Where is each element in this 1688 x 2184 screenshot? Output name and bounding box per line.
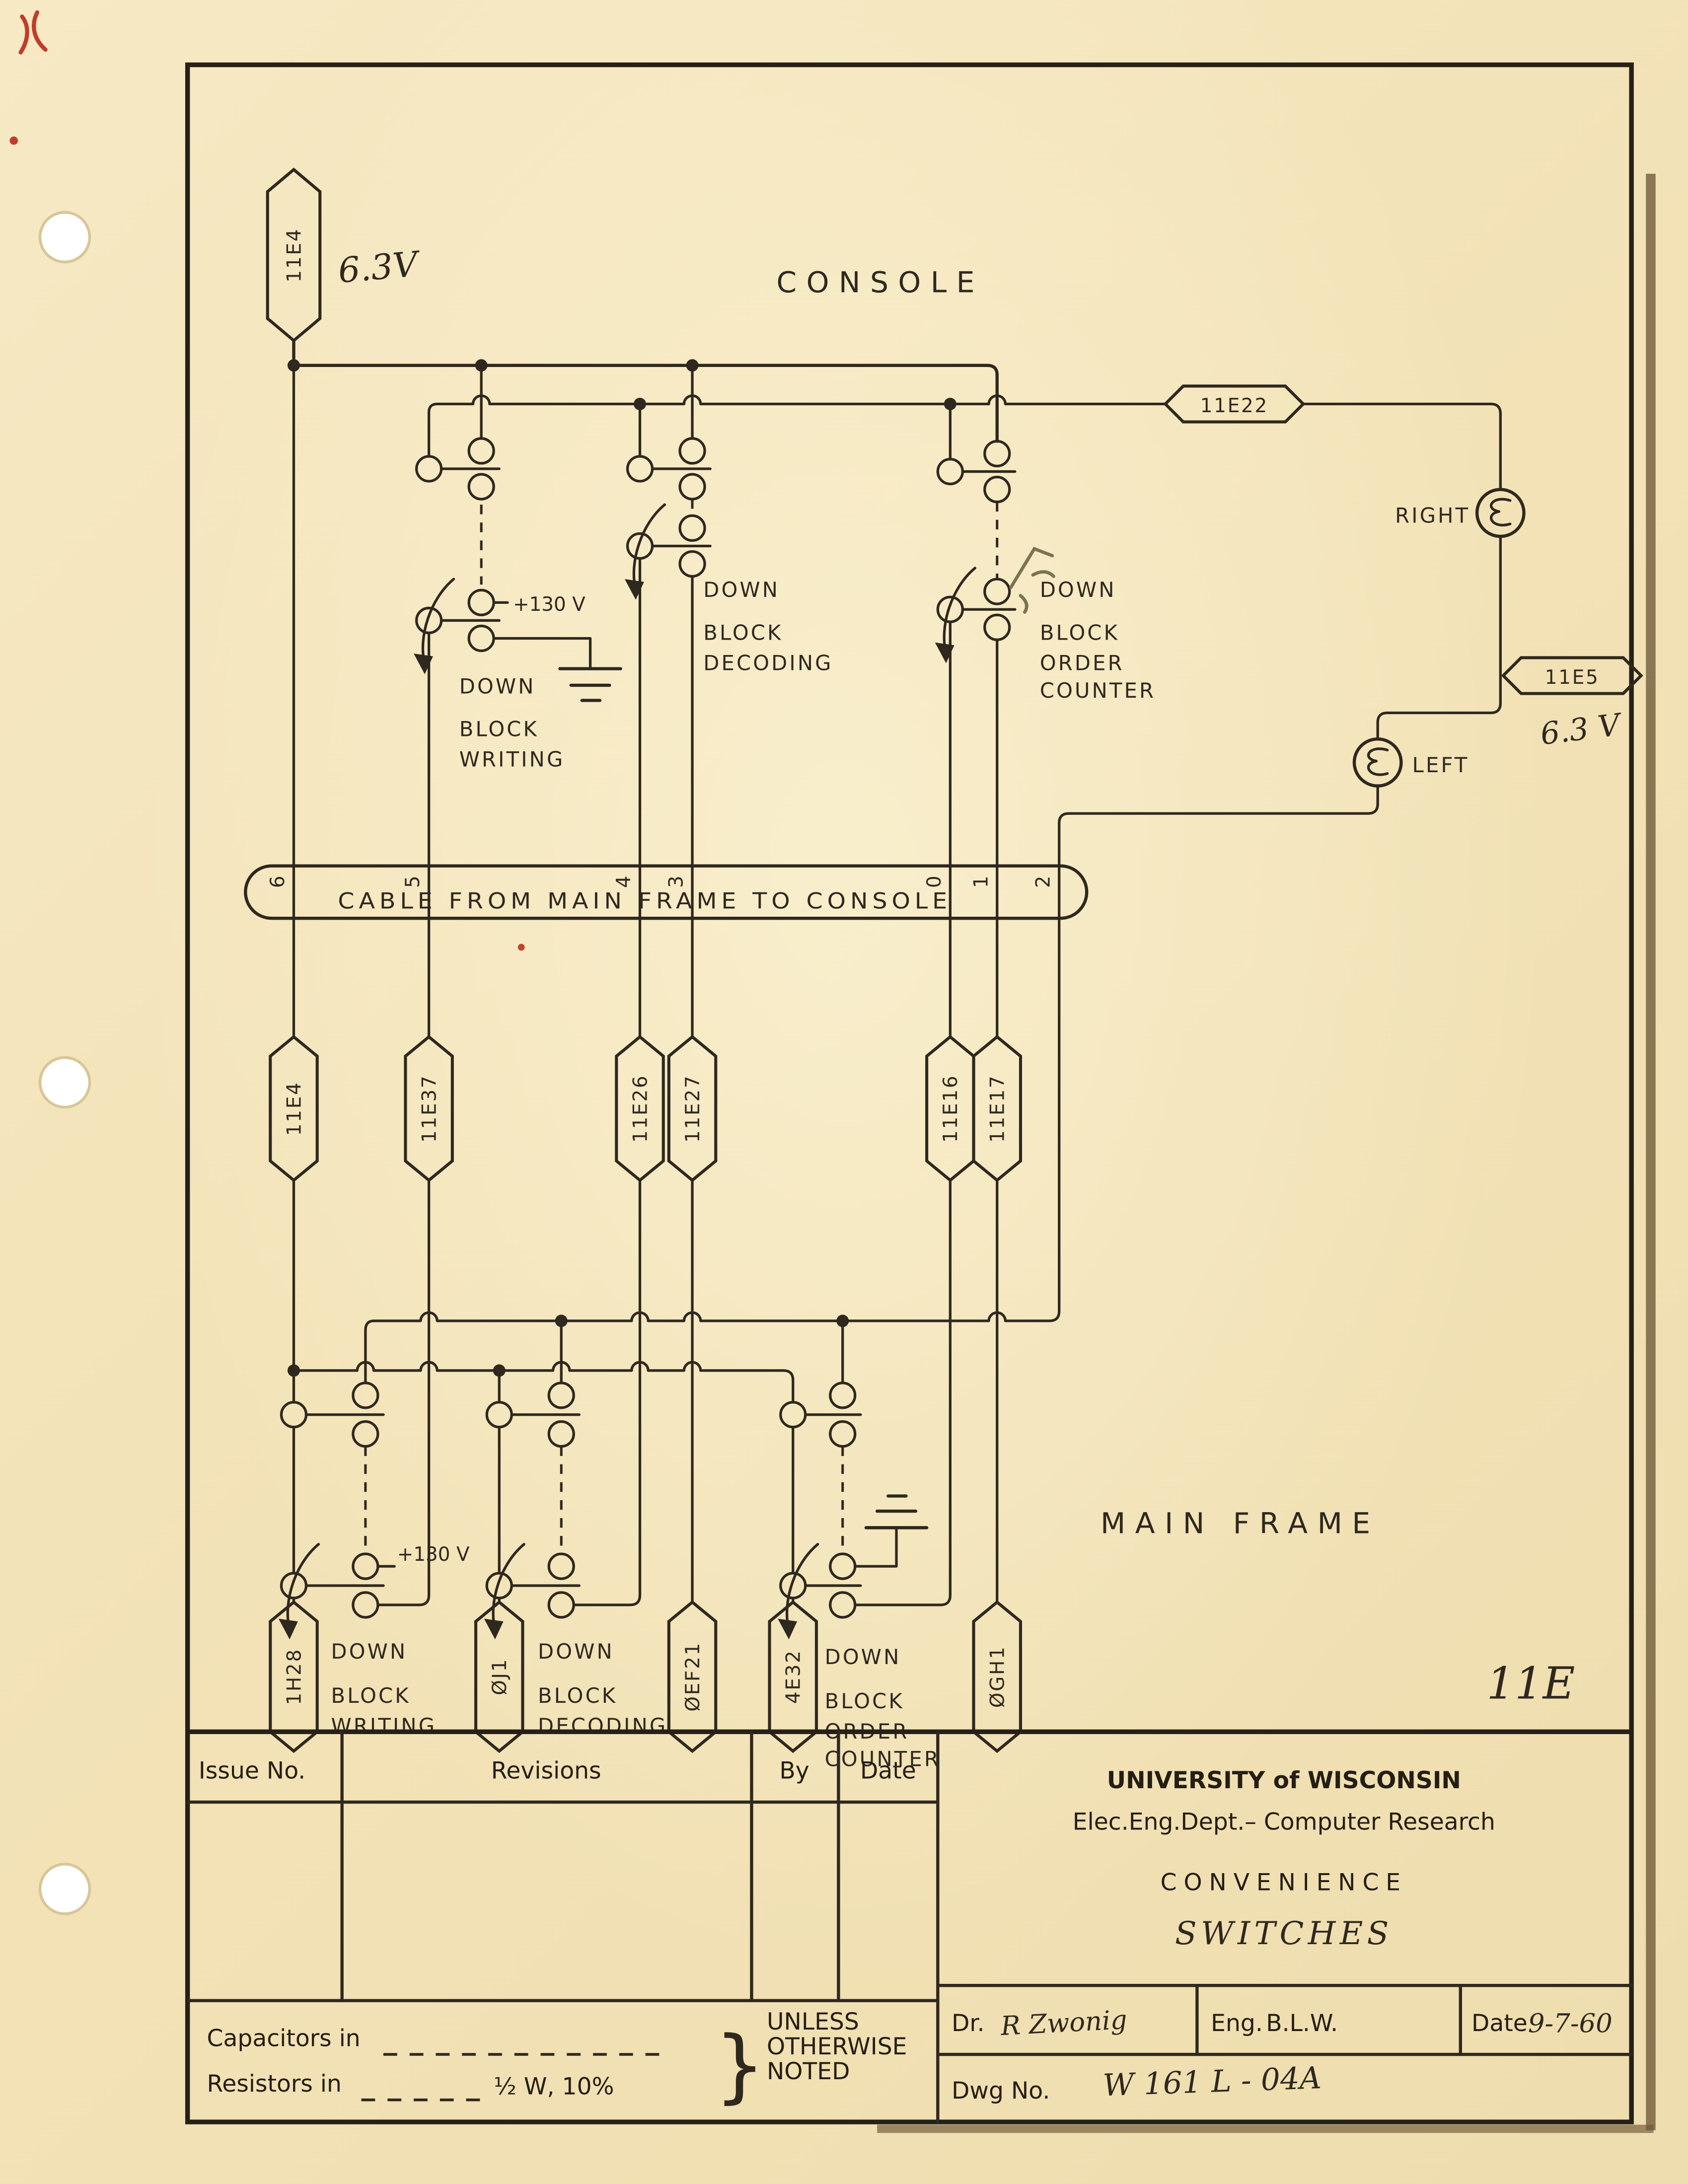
- voltage-6-3v: 6.3V: [337, 244, 423, 291]
- tag-text: 11E16: [940, 1075, 962, 1143]
- switch-position-label: DOWN: [538, 1639, 614, 1664]
- date-label: Date: [1471, 2010, 1528, 2037]
- tag-text: 11E22: [1200, 395, 1268, 417]
- mainframe-switch-block-writing: +130 V DOWN BLOCK WRITING: [279, 1383, 470, 1738]
- engineer-label: Eng.: [1211, 2010, 1263, 2037]
- tag-text: 11E4: [283, 228, 305, 283]
- switch-position-label: DOWN: [825, 1645, 901, 1669]
- conductor-number: 6: [267, 875, 289, 888]
- pivot-circle: [417, 608, 441, 633]
- voltage-130v: +130 V: [397, 1543, 470, 1566]
- main-frame-section-label: MAIN FRAME: [1101, 1506, 1380, 1540]
- contact-circle: [680, 474, 705, 499]
- contact-circle: [985, 579, 1010, 604]
- drafter-label: Dr.: [952, 2010, 984, 2037]
- right-lamp: RIGHT: [1395, 490, 1524, 536]
- conductor-number: 5: [402, 875, 424, 888]
- organization: UNIVERSITY of WISCONSIN: [1107, 1767, 1461, 1794]
- contact-circle: [549, 1422, 574, 1447]
- contact-circle: [353, 1554, 378, 1579]
- switch-name: COUNTER: [1040, 678, 1156, 703]
- tag-text: ØJ1: [489, 1658, 511, 1695]
- lamp-circle: [1354, 739, 1401, 786]
- tag-text: 4E32: [783, 1649, 805, 1704]
- switch-name: DECODING: [703, 651, 833, 675]
- console-switch-block-decoding: DOWN BLOCK DECODING: [625, 438, 833, 675]
- throw-arrow: [944, 568, 975, 654]
- resistors-note: Resistors in: [207, 2070, 342, 2098]
- contact-circle: [985, 615, 1010, 640]
- switch-position-label: DOWN: [703, 578, 780, 602]
- console-switch-block-order-counter: DOWN BLOCK ORDER COUNTER: [935, 441, 1156, 702]
- contact-circle: [469, 626, 494, 651]
- console-section-label: CONSOLE: [776, 266, 984, 299]
- switch-position-label: DOWN: [1040, 578, 1116, 602]
- contact-circle: [469, 474, 494, 499]
- tag-text: 11E37: [419, 1075, 441, 1143]
- pivot-circle: [781, 1402, 806, 1427]
- red-dot: [9, 137, 18, 145]
- signal-tag-0ef21: ØEF21: [669, 1602, 716, 1751]
- scanned-schematic-sheet: CONSOLE 11E4 6.3V +130 V DOWN BLOCK WR: [0, 0, 1688, 2184]
- contact-circle: [549, 1383, 574, 1408]
- contact-circle: [680, 552, 705, 577]
- capacitors-note: Capacitors in: [207, 2025, 361, 2052]
- unless-note-1: UNLESS: [767, 2008, 859, 2036]
- switch-name: BLOCK: [538, 1683, 617, 1708]
- pivot-circle: [487, 1402, 512, 1427]
- engineer-value: B.L.W.: [1266, 2010, 1338, 2037]
- voltage-6-3v-right: 6.3 V: [1539, 707, 1625, 752]
- pivot-circle: [417, 456, 441, 481]
- dwg-no-label: Dwg No.: [952, 2077, 1050, 2105]
- contact-circle: [680, 515, 705, 540]
- punch-hole: [40, 1864, 90, 1914]
- signal-tag-11e22: 11E22: [1166, 386, 1304, 422]
- stub-ground: [494, 639, 590, 669]
- contact-circle: [353, 1422, 378, 1447]
- tag-text: ØGH1: [987, 1645, 1009, 1708]
- date-header: Date: [860, 1757, 916, 1785]
- pivot-circle: [628, 534, 653, 559]
- bus-lamp-console: [429, 396, 1166, 456]
- signal-tag-11e27: 11E27: [669, 1037, 716, 1180]
- red-marks: [9, 12, 524, 950]
- contact-circle: [469, 590, 494, 615]
- conductor-number: 1: [970, 875, 992, 888]
- switch-name: ORDER: [1040, 651, 1124, 675]
- contact-risers: [481, 365, 692, 438]
- red-scribble: [34, 12, 45, 50]
- wire-to-right-lamp: [1303, 404, 1500, 490]
- cable-from-mainframe-to-console: CABLE FROM MAIN FRAME TO CONSOLE 6 5 4 3…: [245, 866, 1087, 919]
- tag-text: 11E27: [682, 1075, 704, 1143]
- signal-tag-11e37: 11E37: [405, 1037, 452, 1180]
- contact-circle: [353, 1383, 378, 1408]
- signal-tag-11e26: 11E26: [616, 1037, 663, 1180]
- revision-rows: [188, 1802, 938, 2001]
- drawing-title-1: CONVENIENCE: [1161, 1869, 1407, 1896]
- pivot-circle: [487, 1573, 512, 1598]
- signal-tag-11e4: 11E4: [270, 1037, 317, 1180]
- throw-arrowhead: [778, 1619, 797, 1640]
- drawing-title-2: SWITCHES: [1175, 1915, 1393, 1952]
- ground-bars: [560, 669, 620, 701]
- throw-arrow: [634, 505, 664, 590]
- switch-name: WRITING: [459, 747, 565, 772]
- lamp-filament: [1368, 749, 1387, 775]
- unless-note-2: OTHERWISE: [767, 2033, 907, 2060]
- switch-name: BLOCK: [459, 717, 539, 741]
- tag-text: 11E5: [1545, 666, 1600, 689]
- contact-circle: [549, 1593, 574, 1617]
- tag-text: 11E4: [283, 1081, 305, 1136]
- by-header: By: [779, 1757, 809, 1785]
- conductor-number: 0: [923, 875, 946, 888]
- signal-tag-11e17: 11E17: [974, 1037, 1021, 1180]
- signal-tag-row: 11E4 11E37 11E26 11E27 11E16 11E17: [270, 1037, 1021, 1180]
- signal-tag-11e4-top: 11E4: [268, 170, 320, 341]
- switch-position-label: DOWN: [331, 1639, 407, 1664]
- switch-name: BLOCK: [331, 1683, 410, 1708]
- ground-bars: [866, 1496, 927, 1528]
- contact-circle: [830, 1383, 855, 1408]
- throw-arrowhead: [484, 1619, 504, 1640]
- tag-text: ØEF21: [682, 1642, 704, 1712]
- switch-name: BLOCK: [825, 1689, 904, 1713]
- resistor-spec: ½ W, 10%: [494, 2073, 614, 2101]
- ground-symbol: [866, 1496, 927, 1528]
- wire-right-to-left-lamp: [1378, 536, 1500, 739]
- revisions-header: Revisions: [491, 1757, 601, 1785]
- conductor-number: 4: [613, 875, 635, 888]
- ground-symbol: [560, 669, 620, 701]
- drafter-signature: R Zwonig: [1000, 2005, 1128, 2041]
- pivot-circle: [938, 459, 962, 484]
- pivot-feeds: [640, 404, 951, 459]
- punch-holes: [40, 213, 90, 1914]
- title-block: Issue No. Revisions By Date UNIVERSITY o…: [188, 1732, 1631, 2122]
- pivot-circle: [282, 1573, 306, 1598]
- console-switch-block-writing: +130 V DOWN BLOCK WRITING: [414, 438, 621, 772]
- throw-arrow: [423, 579, 453, 664]
- contact-circle: [985, 477, 1010, 502]
- signal-tag-0gh1: ØGH1: [974, 1602, 1021, 1751]
- brace: }: [714, 2019, 765, 2112]
- red-speck: [518, 944, 525, 951]
- tag-text: 11E17: [987, 1075, 1009, 1143]
- lamp-circle: [1477, 490, 1524, 536]
- switch-name: BLOCK: [1040, 620, 1119, 645]
- conductor-number: 3: [665, 875, 688, 888]
- pivot-circle: [781, 1573, 806, 1598]
- dwg-no-value: W 161 L - 04A: [1102, 2060, 1322, 2103]
- contact-circle: [353, 1593, 378, 1617]
- lamp-filament: [1491, 499, 1510, 525]
- schematic-drawing: CONSOLE 11E4 6.3V +130 V DOWN BLOCK WR: [0, 0, 1688, 2184]
- unless-note-3: NOTED: [767, 2058, 850, 2085]
- stub-ground: [855, 1528, 896, 1566]
- contact-circle: [680, 438, 705, 463]
- signal-tag-11e5: 11E5: [1503, 657, 1641, 693]
- switch-name: WRITING: [331, 1714, 437, 1738]
- contact-circle: [830, 1593, 855, 1617]
- date-value: 9-7-60: [1528, 2009, 1613, 2039]
- lamp-return-bus: [366, 786, 1378, 1383]
- switch-position-label: DOWN: [459, 674, 536, 699]
- voltage-130v: +130 V: [513, 593, 586, 616]
- contact-circle: [830, 1554, 855, 1579]
- throw-arrowhead: [279, 1619, 298, 1640]
- bus-6v-console: [294, 341, 997, 441]
- page-number: 11E: [1487, 1658, 1575, 1709]
- conductor-number: 2: [1032, 875, 1054, 888]
- cable-label: CABLE FROM MAIN FRAME TO CONSOLE: [338, 889, 952, 914]
- pivot-circle: [938, 597, 962, 622]
- contact-circle: [469, 438, 494, 463]
- right-lamp-label: RIGHT: [1395, 503, 1470, 527]
- contact-circle: [549, 1554, 574, 1579]
- tag-text: 11E26: [629, 1075, 652, 1143]
- punch-hole: [40, 1058, 90, 1107]
- department: Elec.Eng.Dept.– Computer Research: [1073, 1808, 1495, 1835]
- punch-hole: [40, 213, 90, 262]
- mainframe-switch-block-order-counter: DOWN BLOCK ORDER COUNTER: [778, 1383, 941, 1771]
- issue-no-header: Issue No.: [199, 1757, 305, 1785]
- left-lamp-label: LEFT: [1412, 753, 1469, 777]
- pivot-circle: [282, 1402, 306, 1427]
- left-lamp: LEFT: [1354, 739, 1469, 786]
- contact-circle: [830, 1422, 855, 1447]
- contact-circle: [985, 441, 1010, 466]
- switch-name: BLOCK: [703, 620, 783, 645]
- tag-text: 1H28: [283, 1648, 305, 1705]
- signal-tag-11e16: 11E16: [927, 1037, 973, 1180]
- red-scribble: [21, 16, 27, 52]
- switch-name: DECODING: [538, 1714, 667, 1738]
- pivot-circle: [628, 456, 653, 481]
